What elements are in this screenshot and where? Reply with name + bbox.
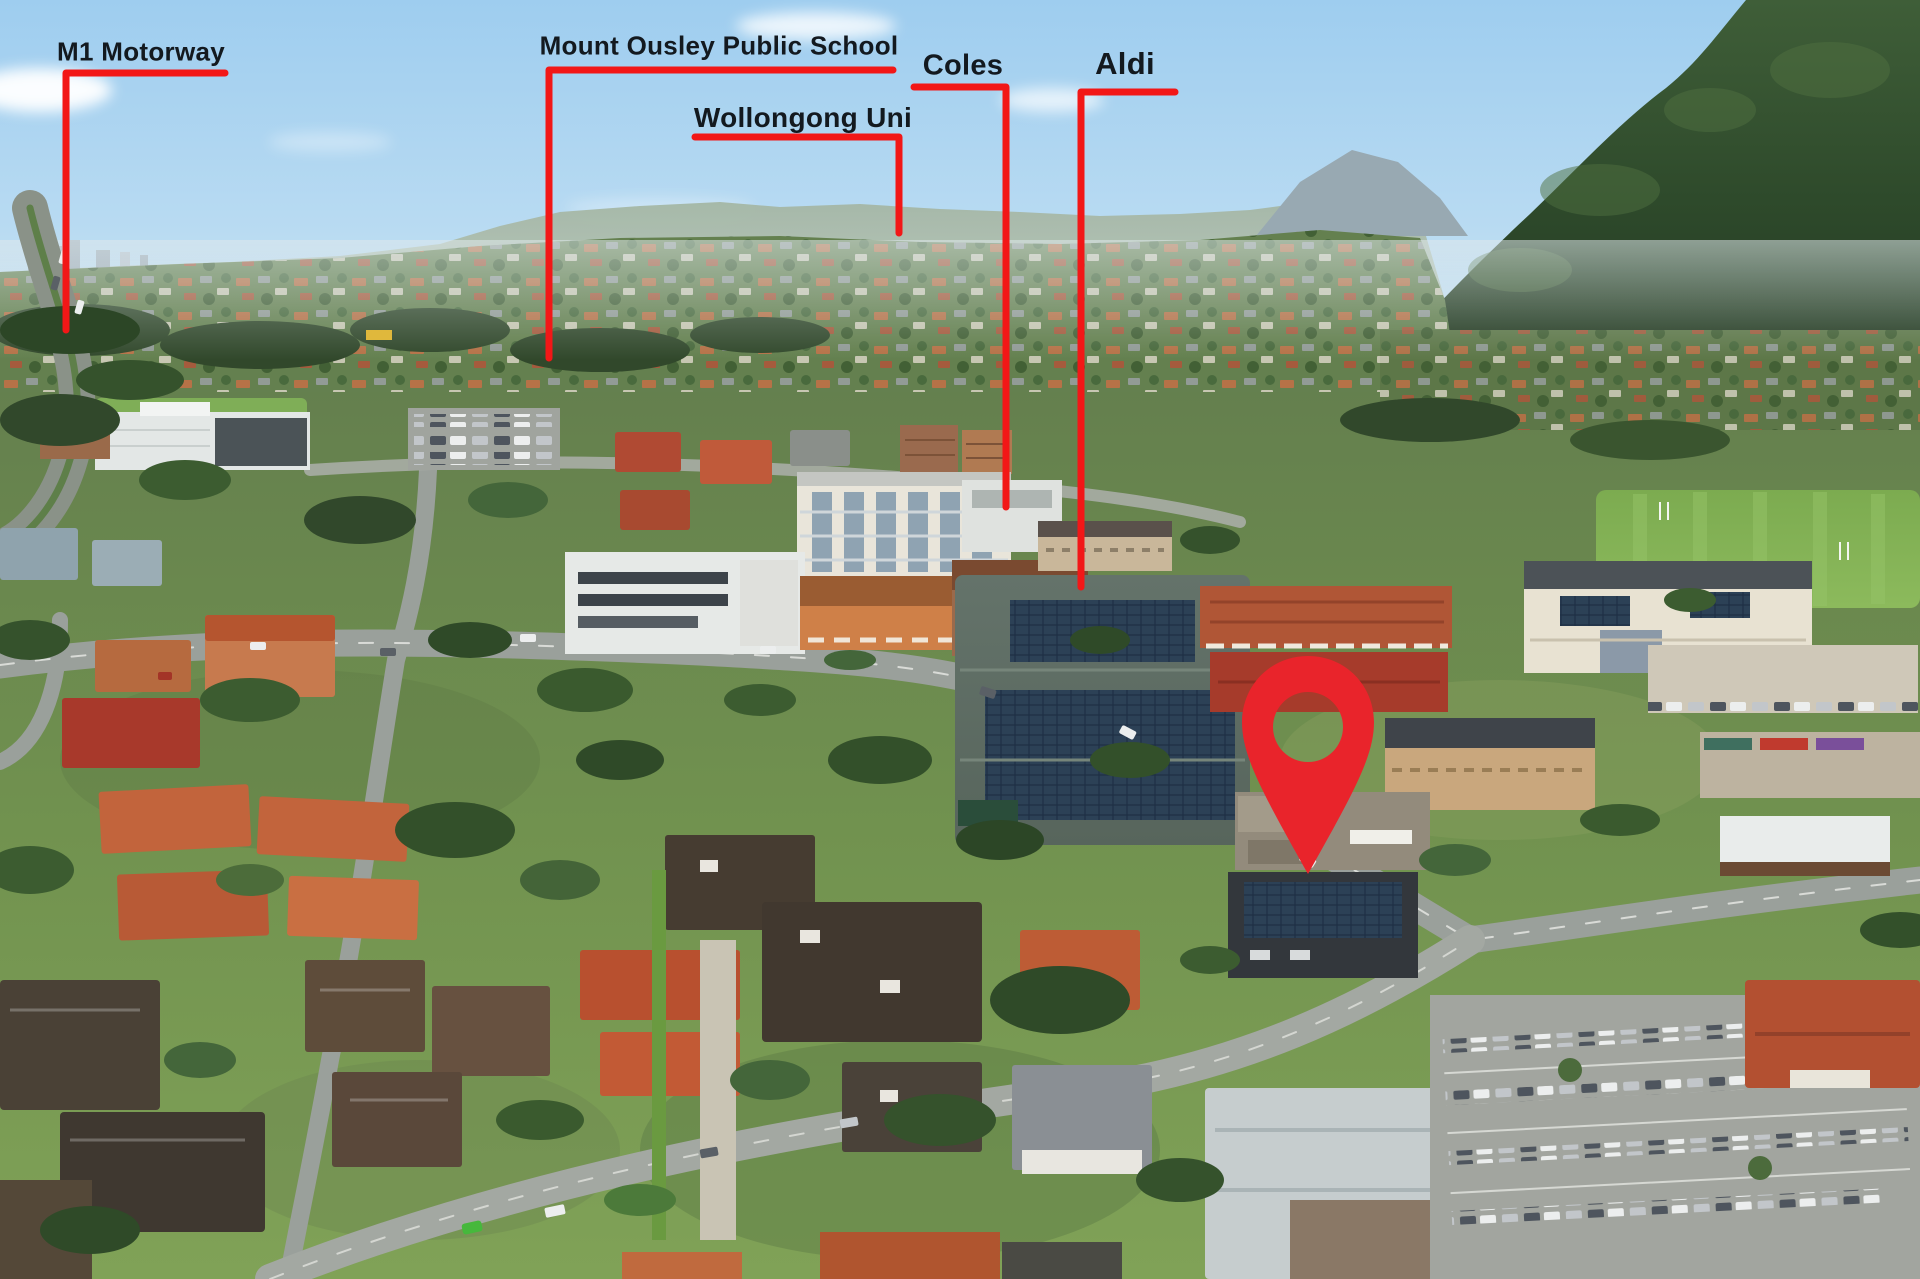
shopping-strip xyxy=(1200,586,1452,648)
office-building xyxy=(1720,816,1890,876)
charcoal-solar-building xyxy=(1228,872,1418,978)
brown-apartments xyxy=(1038,521,1172,571)
weatherboard-house xyxy=(1205,1088,1445,1279)
commercial-buildings xyxy=(565,552,805,654)
parked-cars-row xyxy=(414,414,554,427)
parked-cars-row xyxy=(414,452,554,465)
red-roof-commercial xyxy=(1210,652,1448,712)
atmospheric-haze xyxy=(0,240,1920,360)
school-building xyxy=(95,402,310,470)
aerial-photo: M1 Motorway Mount Ousley Public School W… xyxy=(0,0,1920,1279)
parked-cars-row xyxy=(414,434,554,447)
red-roof-cottage xyxy=(1745,980,1920,1088)
subject-building xyxy=(1235,792,1430,870)
aerial-scene xyxy=(0,0,1920,1279)
